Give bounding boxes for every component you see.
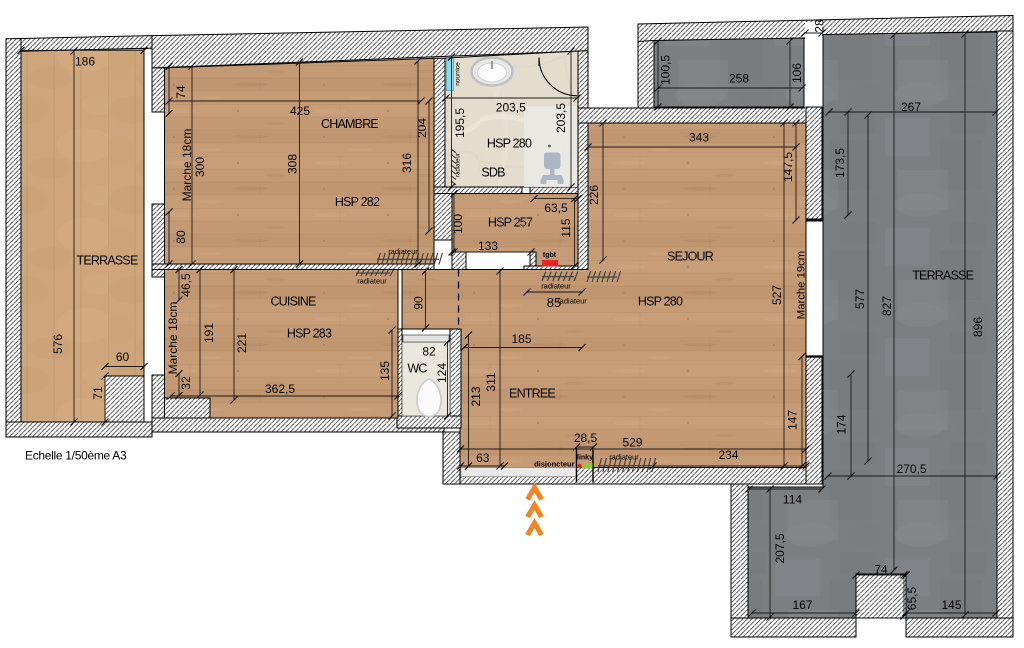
svg-text:316: 316 [400, 153, 414, 173]
svg-text:147: 147 [786, 410, 800, 430]
svg-text:TERRASSE: TERRASSE [77, 253, 138, 267]
svg-text:radiateur: radiateur [541, 282, 571, 291]
svg-text:135: 135 [378, 361, 392, 381]
svg-text:65,5: 65,5 [905, 586, 919, 610]
svg-text:80: 80 [174, 230, 188, 244]
svg-text:82: 82 [422, 344, 436, 358]
svg-text:HSP 280: HSP 280 [638, 295, 683, 309]
svg-text:Echelle 1/50ème A3: Echelle 1/50ème A3 [25, 449, 127, 463]
svg-text:203,5: 203,5 [496, 101, 526, 115]
svg-text:576: 576 [51, 334, 65, 354]
svg-text:28,5: 28,5 [574, 431, 598, 445]
svg-text:577: 577 [853, 289, 867, 309]
svg-text:529: 529 [622, 436, 642, 450]
svg-text:133: 133 [478, 239, 498, 253]
svg-text:radiateur: radiateur [456, 153, 462, 177]
svg-text:226: 226 [587, 185, 601, 205]
svg-text:185: 185 [511, 332, 531, 346]
svg-text:SDB: SDB [481, 166, 505, 180]
svg-text:100,5: 100,5 [659, 55, 673, 85]
svg-text:ENTREE: ENTREE [509, 387, 555, 401]
svg-text:204: 204 [415, 118, 429, 138]
svg-text:90: 90 [412, 296, 426, 310]
svg-text:TERRASSE: TERRASSE [912, 269, 973, 283]
svg-text:HSP 257: HSP 257 [488, 216, 533, 230]
svg-text:827: 827 [880, 296, 894, 316]
svg-text:tgbt: tgbt [543, 252, 557, 259]
svg-text:CUISINE: CUISINE [270, 295, 316, 309]
svg-text:147,5: 147,5 [781, 152, 795, 182]
svg-text:32: 32 [179, 376, 193, 390]
svg-text:308: 308 [286, 154, 300, 174]
svg-text:124: 124 [435, 363, 449, 383]
svg-text:145: 145 [941, 598, 961, 612]
svg-text:425: 425 [290, 104, 310, 118]
svg-text:270,5: 270,5 [897, 462, 927, 476]
svg-text:114: 114 [783, 492, 802, 506]
svg-text:174: 174 [835, 414, 849, 434]
svg-text:Marche 19cm: Marche 19cm [796, 251, 808, 319]
svg-text:527: 527 [770, 285, 784, 305]
svg-text:Marche 18cm: Marche 18cm [180, 129, 194, 202]
svg-text:28: 28 [813, 19, 827, 33]
svg-text:HSP 280: HSP 280 [487, 137, 532, 151]
svg-text:radiateur: radiateur [609, 453, 639, 462]
svg-text:173,5: 173,5 [833, 148, 847, 178]
svg-text:CHAMBRE: CHAMBRE [321, 117, 378, 131]
svg-text:311: 311 [484, 372, 498, 391]
svg-text:896: 896 [971, 317, 985, 337]
svg-text:191: 191 [202, 323, 216, 343]
svg-text:106: 106 [790, 63, 804, 83]
svg-text:disjoncteur: disjoncteur [534, 460, 575, 469]
svg-text:71: 71 [91, 386, 105, 400]
svg-text:207,5: 207,5 [773, 533, 787, 563]
svg-text:115: 115 [559, 218, 573, 237]
svg-text:195,5: 195,5 [453, 108, 467, 138]
svg-text:100: 100 [451, 214, 465, 234]
svg-text:74: 74 [174, 85, 188, 99]
svg-text:74: 74 [874, 562, 888, 576]
svg-text:63: 63 [476, 451, 490, 465]
svg-text:203,5: 203,5 [554, 103, 568, 133]
svg-text:radiateur: radiateur [388, 247, 418, 256]
svg-text:46,5: 46,5 [179, 273, 193, 297]
svg-text:267: 267 [901, 100, 921, 114]
svg-text:362,5: 362,5 [265, 382, 295, 396]
svg-text:234: 234 [718, 448, 738, 462]
svg-text:300: 300 [193, 157, 207, 177]
svg-text:213: 213 [469, 386, 483, 406]
svg-text:HSP 282: HSP 282 [335, 195, 380, 209]
svg-text:Marche 18cm: Marche 18cm [166, 302, 180, 375]
svg-text:WC: WC [407, 362, 427, 376]
svg-text:HSP 283: HSP 283 [287, 327, 332, 341]
svg-text:167: 167 [792, 598, 812, 612]
svg-text:343: 343 [689, 131, 709, 145]
svg-text:radiateur: radiateur [557, 297, 587, 306]
svg-text:linky: linky [577, 455, 593, 462]
svg-text:60: 60 [116, 350, 130, 364]
svg-text:SEJOUR: SEJOUR [667, 250, 714, 264]
svg-text:nourrice: nourrice [455, 62, 462, 86]
svg-text:221: 221 [235, 333, 249, 353]
svg-text:63,5: 63,5 [544, 201, 568, 215]
svg-text:258: 258 [729, 71, 749, 85]
svg-text:radiateur: radiateur [357, 277, 387, 286]
svg-text:186: 186 [75, 54, 95, 68]
